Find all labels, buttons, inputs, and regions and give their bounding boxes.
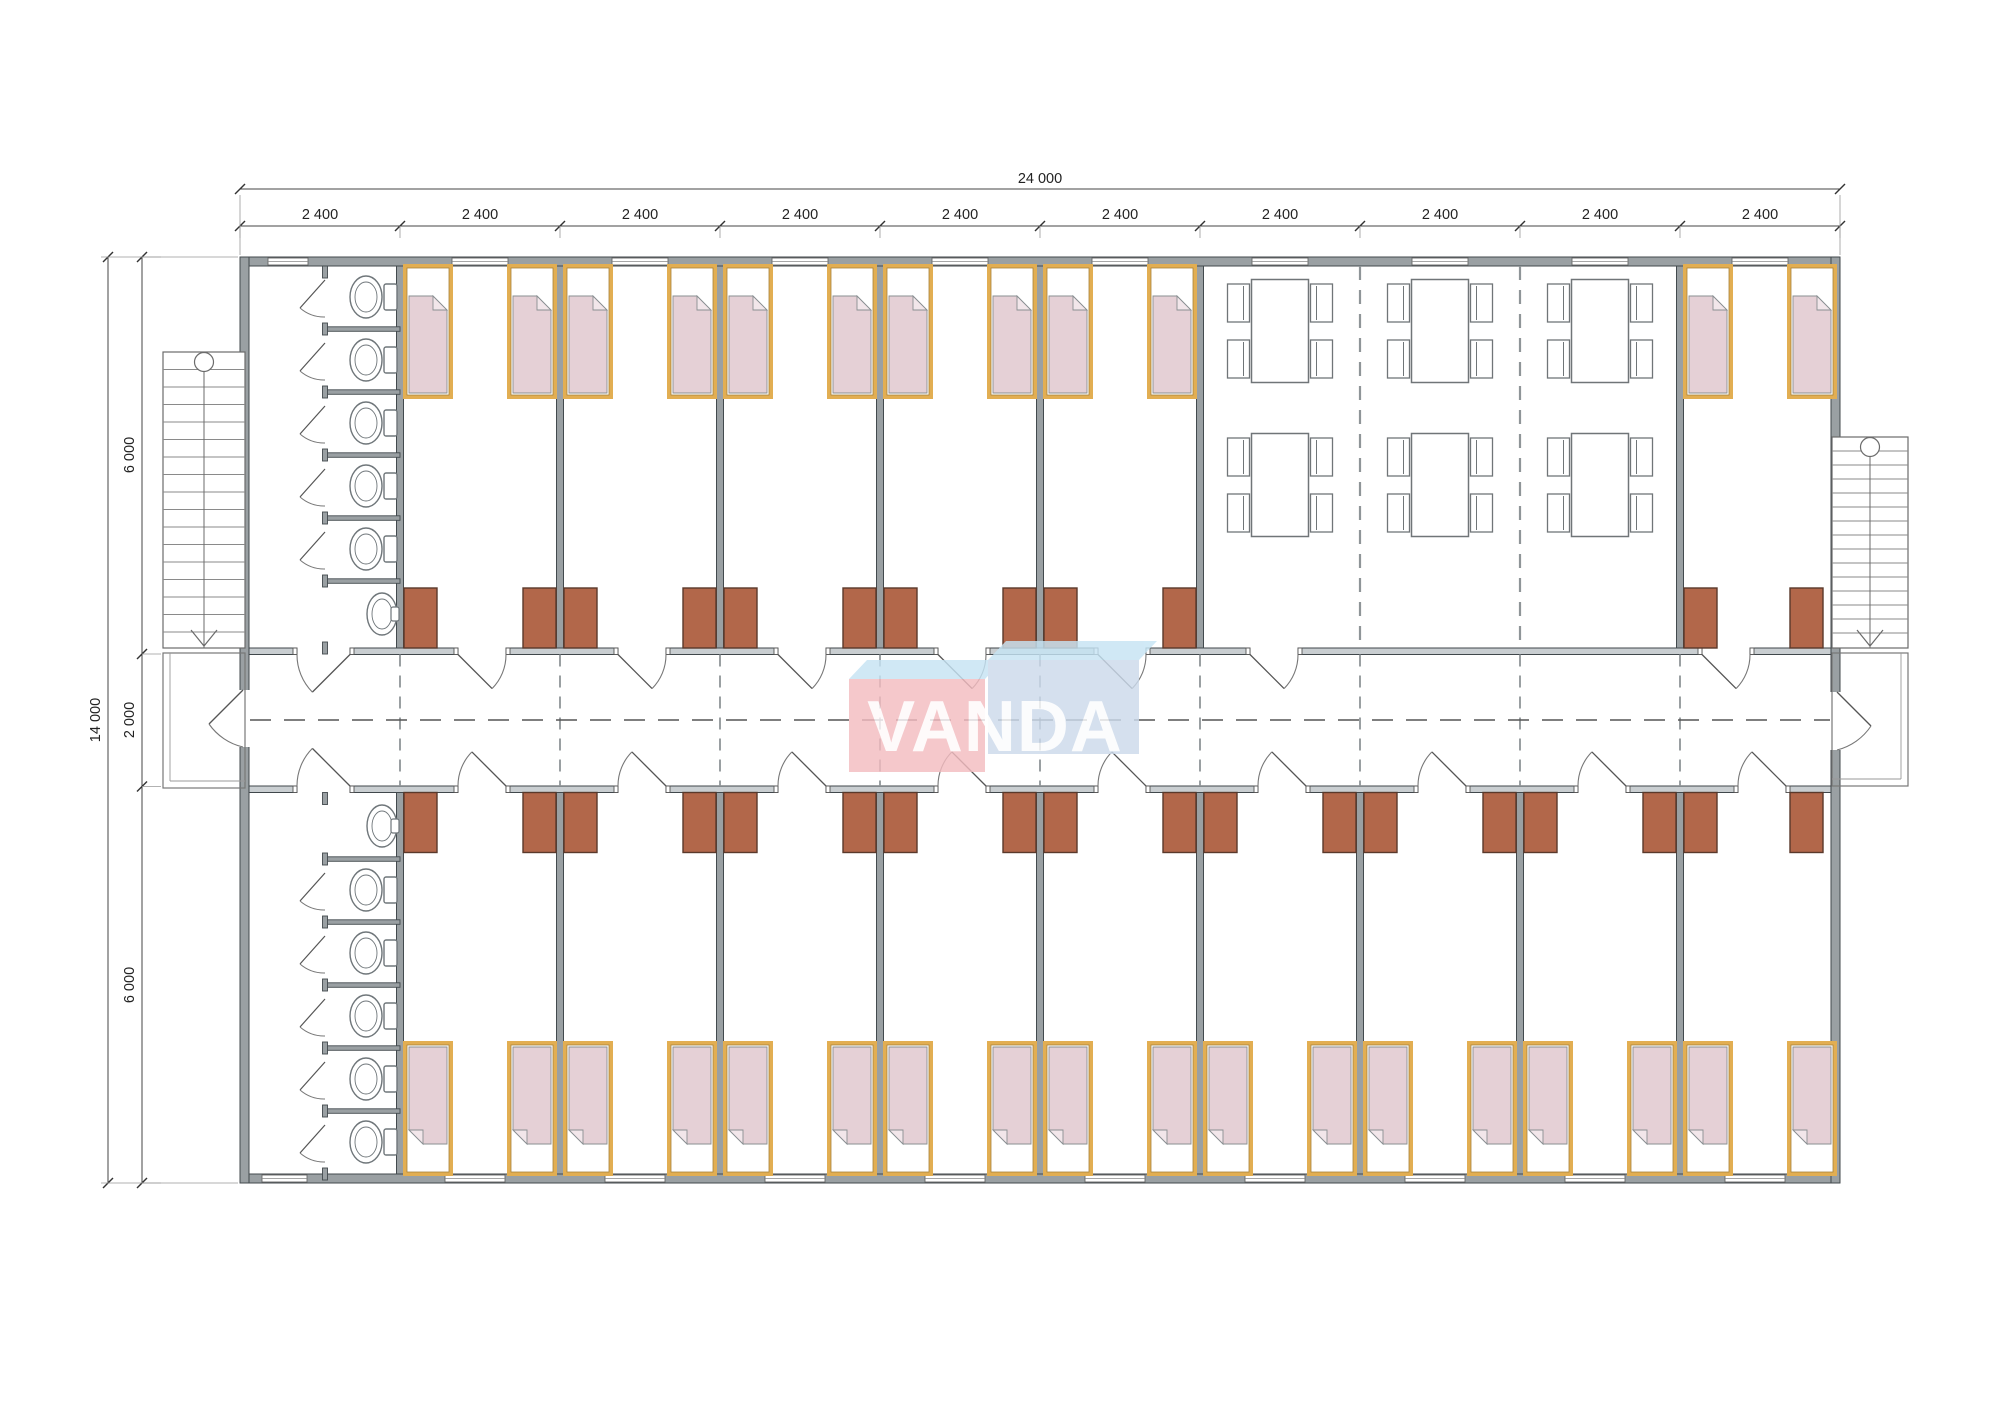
door-jamb bbox=[1750, 648, 1754, 655]
bathroom-top bbox=[300, 266, 400, 654]
door-jamb bbox=[986, 648, 990, 655]
stall-door-leaf bbox=[300, 532, 325, 560]
wardrobe bbox=[1044, 588, 1077, 648]
door-leaf bbox=[1272, 752, 1306, 786]
door-jamb bbox=[934, 786, 938, 793]
door-jamb bbox=[666, 648, 670, 655]
stall-door-arc bbox=[300, 434, 325, 443]
bed-blanket bbox=[1689, 296, 1727, 393]
dim-label-top-segment: 2 400 bbox=[1102, 207, 1138, 223]
door-jamb bbox=[1246, 648, 1250, 655]
wardrobe bbox=[683, 588, 716, 648]
brand-watermark-text: VANDA bbox=[867, 687, 1123, 767]
dining-chair bbox=[1311, 340, 1333, 378]
wardrobe bbox=[1364, 793, 1397, 853]
stall-divider-wall bbox=[324, 516, 400, 521]
partition-wall bbox=[1517, 793, 1524, 1175]
door-leaf bbox=[312, 655, 350, 693]
wardrobe bbox=[523, 793, 556, 853]
stall-front-stub bbox=[323, 853, 328, 865]
wardrobe bbox=[1003, 588, 1036, 648]
partition-wall bbox=[877, 793, 884, 1175]
bed-blanket bbox=[889, 1047, 927, 1144]
door-jamb bbox=[293, 648, 297, 655]
corridor-wall-segment bbox=[1298, 648, 1702, 655]
door-jamb bbox=[1698, 648, 1702, 655]
wardrobe bbox=[1790, 793, 1823, 853]
door-jamb bbox=[986, 786, 990, 793]
partition-wall bbox=[1677, 793, 1684, 1175]
door-swing-arc bbox=[492, 655, 506, 689]
dining-chair bbox=[1228, 284, 1250, 322]
dining-chair bbox=[1631, 340, 1653, 378]
door-jamb bbox=[826, 648, 830, 655]
door-leaf bbox=[1592, 752, 1626, 786]
bed-blanket bbox=[993, 296, 1031, 393]
dim-label-top-segment: 2 400 bbox=[782, 207, 818, 223]
partition-wall bbox=[1357, 793, 1364, 1175]
dining-chair bbox=[1548, 438, 1570, 476]
door-jamb bbox=[1094, 786, 1098, 793]
toilet-tank bbox=[384, 347, 397, 373]
door-leaf bbox=[618, 655, 652, 689]
dining-chair bbox=[1631, 284, 1653, 322]
corridor-wall-segment bbox=[1786, 786, 1831, 793]
stall-divider-wall bbox=[324, 1109, 400, 1114]
stall-door-leaf bbox=[300, 280, 325, 308]
wardrobe bbox=[1044, 793, 1077, 853]
dining-chair bbox=[1548, 494, 1570, 532]
logo-box-top-face bbox=[988, 641, 1157, 660]
stall-door-leaf bbox=[300, 873, 325, 901]
door-swing-arc bbox=[1736, 655, 1750, 689]
dining-table bbox=[1572, 280, 1629, 383]
door-swing-arc bbox=[1284, 655, 1298, 689]
dimension-top: 24 0002 4002 4002 4002 4002 4002 4002 40… bbox=[235, 171, 1845, 255]
bed-blanket bbox=[1313, 1047, 1351, 1144]
wardrobe bbox=[564, 588, 597, 648]
entrance-door-leaf bbox=[209, 690, 243, 724]
door-swing-arc bbox=[297, 655, 312, 693]
bed-blanket bbox=[833, 1047, 871, 1144]
wardrobe bbox=[884, 588, 917, 648]
door-leaf bbox=[792, 752, 826, 786]
door-leaf bbox=[312, 748, 350, 786]
brand-watermark: VANDA bbox=[849, 641, 1157, 772]
door-jamb bbox=[506, 648, 510, 655]
stall-door-leaf bbox=[300, 1125, 325, 1153]
dim-label-left-segment: 6 000 bbox=[122, 967, 138, 1003]
dim-label-top-segment: 2 400 bbox=[622, 207, 658, 223]
dining-chair bbox=[1311, 494, 1333, 532]
door-swing-arc bbox=[618, 752, 632, 786]
door-leaf bbox=[1752, 752, 1786, 786]
floorplan-drawing: 24 0002 4002 4002 4002 4002 4002 4002 40… bbox=[0, 0, 2000, 1415]
dining-chair bbox=[1228, 494, 1250, 532]
dining-chair bbox=[1388, 284, 1410, 322]
stall-front-stub bbox=[323, 1042, 328, 1054]
bed-blanket bbox=[673, 296, 711, 393]
wardrobe bbox=[724, 793, 757, 853]
door-jamb bbox=[454, 786, 458, 793]
landing-left bbox=[163, 653, 245, 788]
bed-blanket bbox=[1793, 296, 1831, 393]
wardrobe bbox=[1483, 793, 1516, 853]
dining-chair bbox=[1471, 494, 1493, 532]
stall-door-leaf bbox=[300, 1062, 325, 1090]
bed-blanket bbox=[729, 296, 767, 393]
stair-newel-circle bbox=[195, 353, 214, 372]
door-jamb bbox=[1146, 786, 1150, 793]
wardrobe bbox=[564, 793, 597, 853]
partition-wall bbox=[557, 266, 564, 648]
dining-chair bbox=[1388, 340, 1410, 378]
bed-blanket bbox=[1689, 1047, 1727, 1144]
stall-divider-wall bbox=[324, 857, 400, 862]
door-swing-arc bbox=[812, 655, 826, 689]
corridor-wall-segment bbox=[986, 786, 1098, 793]
corridor-wall-segment bbox=[1306, 786, 1418, 793]
dim-label-top-segment: 2 400 bbox=[1422, 207, 1458, 223]
wardrobe bbox=[1323, 793, 1356, 853]
corridor-wall-segment bbox=[506, 786, 618, 793]
entrance-door-arc bbox=[209, 724, 243, 747]
stall-divider-wall bbox=[324, 453, 400, 458]
sink-tap bbox=[391, 819, 399, 833]
dining-table bbox=[1252, 280, 1309, 383]
wardrobe bbox=[843, 588, 876, 648]
stall-door-arc bbox=[300, 1027, 325, 1036]
landing-outline bbox=[1832, 653, 1908, 786]
dining-chair bbox=[1311, 438, 1333, 476]
door-jamb bbox=[614, 648, 618, 655]
door-jamb bbox=[614, 786, 618, 793]
dining-chair bbox=[1471, 438, 1493, 476]
stall-front-stub bbox=[323, 1105, 328, 1117]
dining-table bbox=[1412, 434, 1469, 537]
dining-chair bbox=[1228, 438, 1250, 476]
stall-door-leaf bbox=[300, 936, 325, 964]
door-swing-arc bbox=[1738, 752, 1752, 786]
partition-wall bbox=[1197, 266, 1204, 648]
door-jamb bbox=[1254, 786, 1258, 793]
wardrobe bbox=[1163, 588, 1196, 648]
wardrobe bbox=[843, 793, 876, 853]
dining-chair bbox=[1548, 284, 1570, 322]
bed-blanket bbox=[409, 296, 447, 393]
partition-wall bbox=[877, 266, 884, 648]
stall-divider-wall bbox=[324, 1046, 400, 1051]
dining-chair bbox=[1471, 284, 1493, 322]
door-jamb bbox=[774, 786, 778, 793]
corridor-wall-segment bbox=[350, 786, 458, 793]
stairs-left bbox=[163, 352, 245, 648]
door-leaf bbox=[778, 655, 812, 689]
partition-wall bbox=[717, 793, 724, 1175]
door-jamb bbox=[1786, 786, 1790, 793]
bed-blanket bbox=[729, 1047, 767, 1144]
door-swing-arc bbox=[1418, 752, 1432, 786]
stall-front-stub bbox=[323, 386, 328, 398]
corridor-wall-segment bbox=[666, 786, 778, 793]
door-jamb bbox=[1414, 786, 1418, 793]
corridor-wall-segment bbox=[249, 648, 297, 655]
corridor-wall-segment bbox=[1750, 648, 1831, 655]
wardrobe bbox=[1790, 588, 1823, 648]
toilet-tank bbox=[384, 877, 397, 903]
dim-label-top-segment: 2 400 bbox=[462, 207, 498, 223]
dim-label-top-segment: 2 400 bbox=[942, 207, 978, 223]
wardrobe bbox=[1204, 793, 1237, 853]
stall-door-arc bbox=[300, 497, 325, 506]
stall-door-arc bbox=[300, 1090, 325, 1099]
dining-chair bbox=[1631, 494, 1653, 532]
stall-door-leaf bbox=[300, 406, 325, 434]
stall-door-arc bbox=[300, 371, 325, 380]
stairs-right bbox=[1832, 437, 1908, 648]
stall-door-arc bbox=[300, 1153, 325, 1162]
partition-wall bbox=[557, 793, 564, 1175]
bed-blanket bbox=[1153, 296, 1191, 393]
bed-blanket bbox=[889, 296, 927, 393]
toilet-tank bbox=[384, 1003, 397, 1029]
corridor-wall-segment bbox=[350, 648, 458, 655]
stall-divider-wall bbox=[324, 327, 400, 332]
door-leaf bbox=[1250, 655, 1284, 689]
toilet-tank bbox=[384, 473, 397, 499]
wardrobe bbox=[1684, 588, 1717, 648]
dim-label-top-segment: 2 400 bbox=[302, 207, 338, 223]
door-jamb bbox=[1466, 786, 1470, 793]
door-jamb bbox=[350, 648, 354, 655]
stall-front-stub bbox=[323, 979, 328, 991]
door-jamb bbox=[826, 786, 830, 793]
stall-door-arc bbox=[300, 308, 325, 317]
wardrobe bbox=[1643, 793, 1676, 853]
stall-door-leaf bbox=[300, 999, 325, 1027]
wardrobe bbox=[724, 588, 757, 648]
landing-right bbox=[1832, 653, 1908, 786]
wardrobe bbox=[683, 793, 716, 853]
partition-wall bbox=[717, 266, 724, 648]
stall-door-leaf bbox=[300, 343, 325, 371]
toilet-tank bbox=[384, 284, 397, 310]
door-jamb bbox=[350, 786, 354, 793]
bed-blanket bbox=[1049, 1047, 1087, 1144]
bed-blanket bbox=[1793, 1047, 1831, 1144]
corridor-wall-segment bbox=[826, 648, 938, 655]
door-jamb bbox=[1574, 786, 1578, 793]
corridor-wall-segment bbox=[1466, 786, 1578, 793]
floorplan-sheet: 24 0002 4002 4002 4002 4002 4002 4002 40… bbox=[0, 0, 2000, 1415]
bed-blanket bbox=[409, 1047, 447, 1144]
corridor-wall-segment bbox=[826, 786, 938, 793]
door-swing-arc bbox=[778, 752, 792, 786]
bed-blanket bbox=[833, 296, 871, 393]
dining-chair bbox=[1388, 494, 1410, 532]
corridor-wall-segment bbox=[666, 648, 778, 655]
dining-chair bbox=[1471, 340, 1493, 378]
stall-door-leaf bbox=[300, 469, 325, 497]
dining-table bbox=[1572, 434, 1629, 537]
stall-front-stub bbox=[323, 575, 328, 587]
door-jamb bbox=[506, 786, 510, 793]
dining-area bbox=[1228, 280, 1653, 537]
wardrobe bbox=[1163, 793, 1196, 853]
entrance-door-leaf bbox=[1837, 692, 1871, 726]
stall-front-stub bbox=[323, 449, 328, 461]
wardrobe bbox=[1524, 793, 1557, 853]
partition-wall bbox=[1197, 793, 1204, 1175]
stall-front-stub bbox=[323, 916, 328, 928]
door-swing-arc bbox=[297, 748, 312, 786]
stall-front-stub bbox=[323, 323, 328, 335]
door-leaf bbox=[1702, 655, 1736, 689]
partition-wall bbox=[1677, 266, 1684, 648]
dining-chair bbox=[1631, 438, 1653, 476]
wardrobe bbox=[884, 793, 917, 853]
entrance-door-arc bbox=[1837, 726, 1871, 750]
dining-chair bbox=[1311, 284, 1333, 322]
bed-blanket bbox=[1209, 1047, 1247, 1144]
wardrobe bbox=[404, 588, 437, 648]
stall-front-stub bbox=[323, 512, 328, 524]
dining-table bbox=[1412, 280, 1469, 383]
door-jamb bbox=[1298, 648, 1302, 655]
door-jamb bbox=[1734, 786, 1738, 793]
wardrobe bbox=[404, 793, 437, 853]
corridor-wall-segment bbox=[506, 648, 618, 655]
corridor-wall-segment bbox=[249, 786, 297, 793]
stall-door-arc bbox=[300, 901, 325, 910]
corridor-wall-segment bbox=[1146, 648, 1250, 655]
stall-divider-wall bbox=[324, 579, 400, 584]
stall-door-arc bbox=[300, 964, 325, 973]
bed-blanket bbox=[1049, 296, 1087, 393]
sink-tap bbox=[391, 607, 399, 621]
dining-chair bbox=[1548, 340, 1570, 378]
toilet-tank bbox=[384, 940, 397, 966]
bed-blanket bbox=[673, 1047, 711, 1144]
corridor-wall-segment bbox=[1146, 786, 1258, 793]
bed-blanket bbox=[1633, 1047, 1671, 1144]
bed-blanket bbox=[569, 1047, 607, 1144]
wardrobe bbox=[1684, 793, 1717, 853]
bedrooms-bottom bbox=[404, 793, 1835, 1175]
bed-blanket bbox=[1153, 1047, 1191, 1144]
bed-blanket bbox=[513, 296, 551, 393]
dim-label-left-segment: 2 000 bbox=[122, 702, 138, 738]
door-swing-arc bbox=[1258, 752, 1272, 786]
partition-wall bbox=[1037, 266, 1044, 648]
door-jamb bbox=[293, 786, 297, 793]
bed-blanket bbox=[1369, 1047, 1407, 1144]
dim-label-top-segment: 2 400 bbox=[1582, 207, 1618, 223]
logo-box-top-face bbox=[849, 660, 1003, 679]
partition-wall bbox=[1037, 793, 1044, 1175]
wardrobe bbox=[1003, 793, 1036, 853]
door-leaf bbox=[632, 752, 666, 786]
door-jamb bbox=[934, 648, 938, 655]
bed-blanket bbox=[1473, 1047, 1511, 1144]
dim-label-left-total: 14 000 bbox=[88, 698, 104, 742]
dim-label-top-segment: 2 400 bbox=[1262, 207, 1298, 223]
stall-divider-wall bbox=[324, 983, 400, 988]
door-jamb bbox=[1626, 786, 1630, 793]
door-swing-arc bbox=[1578, 752, 1592, 786]
door-leaf bbox=[458, 655, 492, 689]
stair-newel-circle bbox=[1861, 438, 1880, 457]
bed-blanket bbox=[993, 1047, 1031, 1144]
bed-blanket bbox=[1529, 1047, 1567, 1144]
door-jamb bbox=[666, 786, 670, 793]
wardrobe bbox=[523, 588, 556, 648]
door-jamb bbox=[454, 648, 458, 655]
door-leaf bbox=[1432, 752, 1466, 786]
bathroom-bottom bbox=[300, 793, 400, 1181]
dining-chair bbox=[1228, 340, 1250, 378]
dim-label-left-segment: 6 000 bbox=[122, 437, 138, 473]
stall-front-stub bbox=[323, 266, 328, 278]
bed-blanket bbox=[513, 1047, 551, 1144]
stall-door-arc bbox=[300, 560, 325, 569]
dining-table bbox=[1252, 434, 1309, 537]
stall-front-stub bbox=[323, 793, 328, 805]
toilet-tank bbox=[384, 1066, 397, 1092]
door-jamb bbox=[1306, 786, 1310, 793]
stall-divider-wall bbox=[324, 390, 400, 395]
dim-label-top-segment: 2 400 bbox=[1742, 207, 1778, 223]
stall-divider-wall bbox=[324, 920, 400, 925]
landing-outline bbox=[163, 653, 245, 788]
toilet-tank bbox=[384, 1129, 397, 1155]
corridor-wall-segment bbox=[1626, 786, 1738, 793]
door-swing-arc bbox=[652, 655, 666, 689]
bed-blanket bbox=[569, 296, 607, 393]
stall-front-stub bbox=[323, 642, 328, 654]
door-leaf bbox=[472, 752, 506, 786]
dim-label-top-total: 24 000 bbox=[1018, 171, 1062, 187]
door-swing-arc bbox=[458, 752, 472, 786]
toilet-tank bbox=[384, 410, 397, 436]
stall-front-stub bbox=[323, 1168, 328, 1180]
toilet-tank bbox=[384, 536, 397, 562]
dining-chair bbox=[1388, 438, 1410, 476]
door-jamb bbox=[774, 648, 778, 655]
